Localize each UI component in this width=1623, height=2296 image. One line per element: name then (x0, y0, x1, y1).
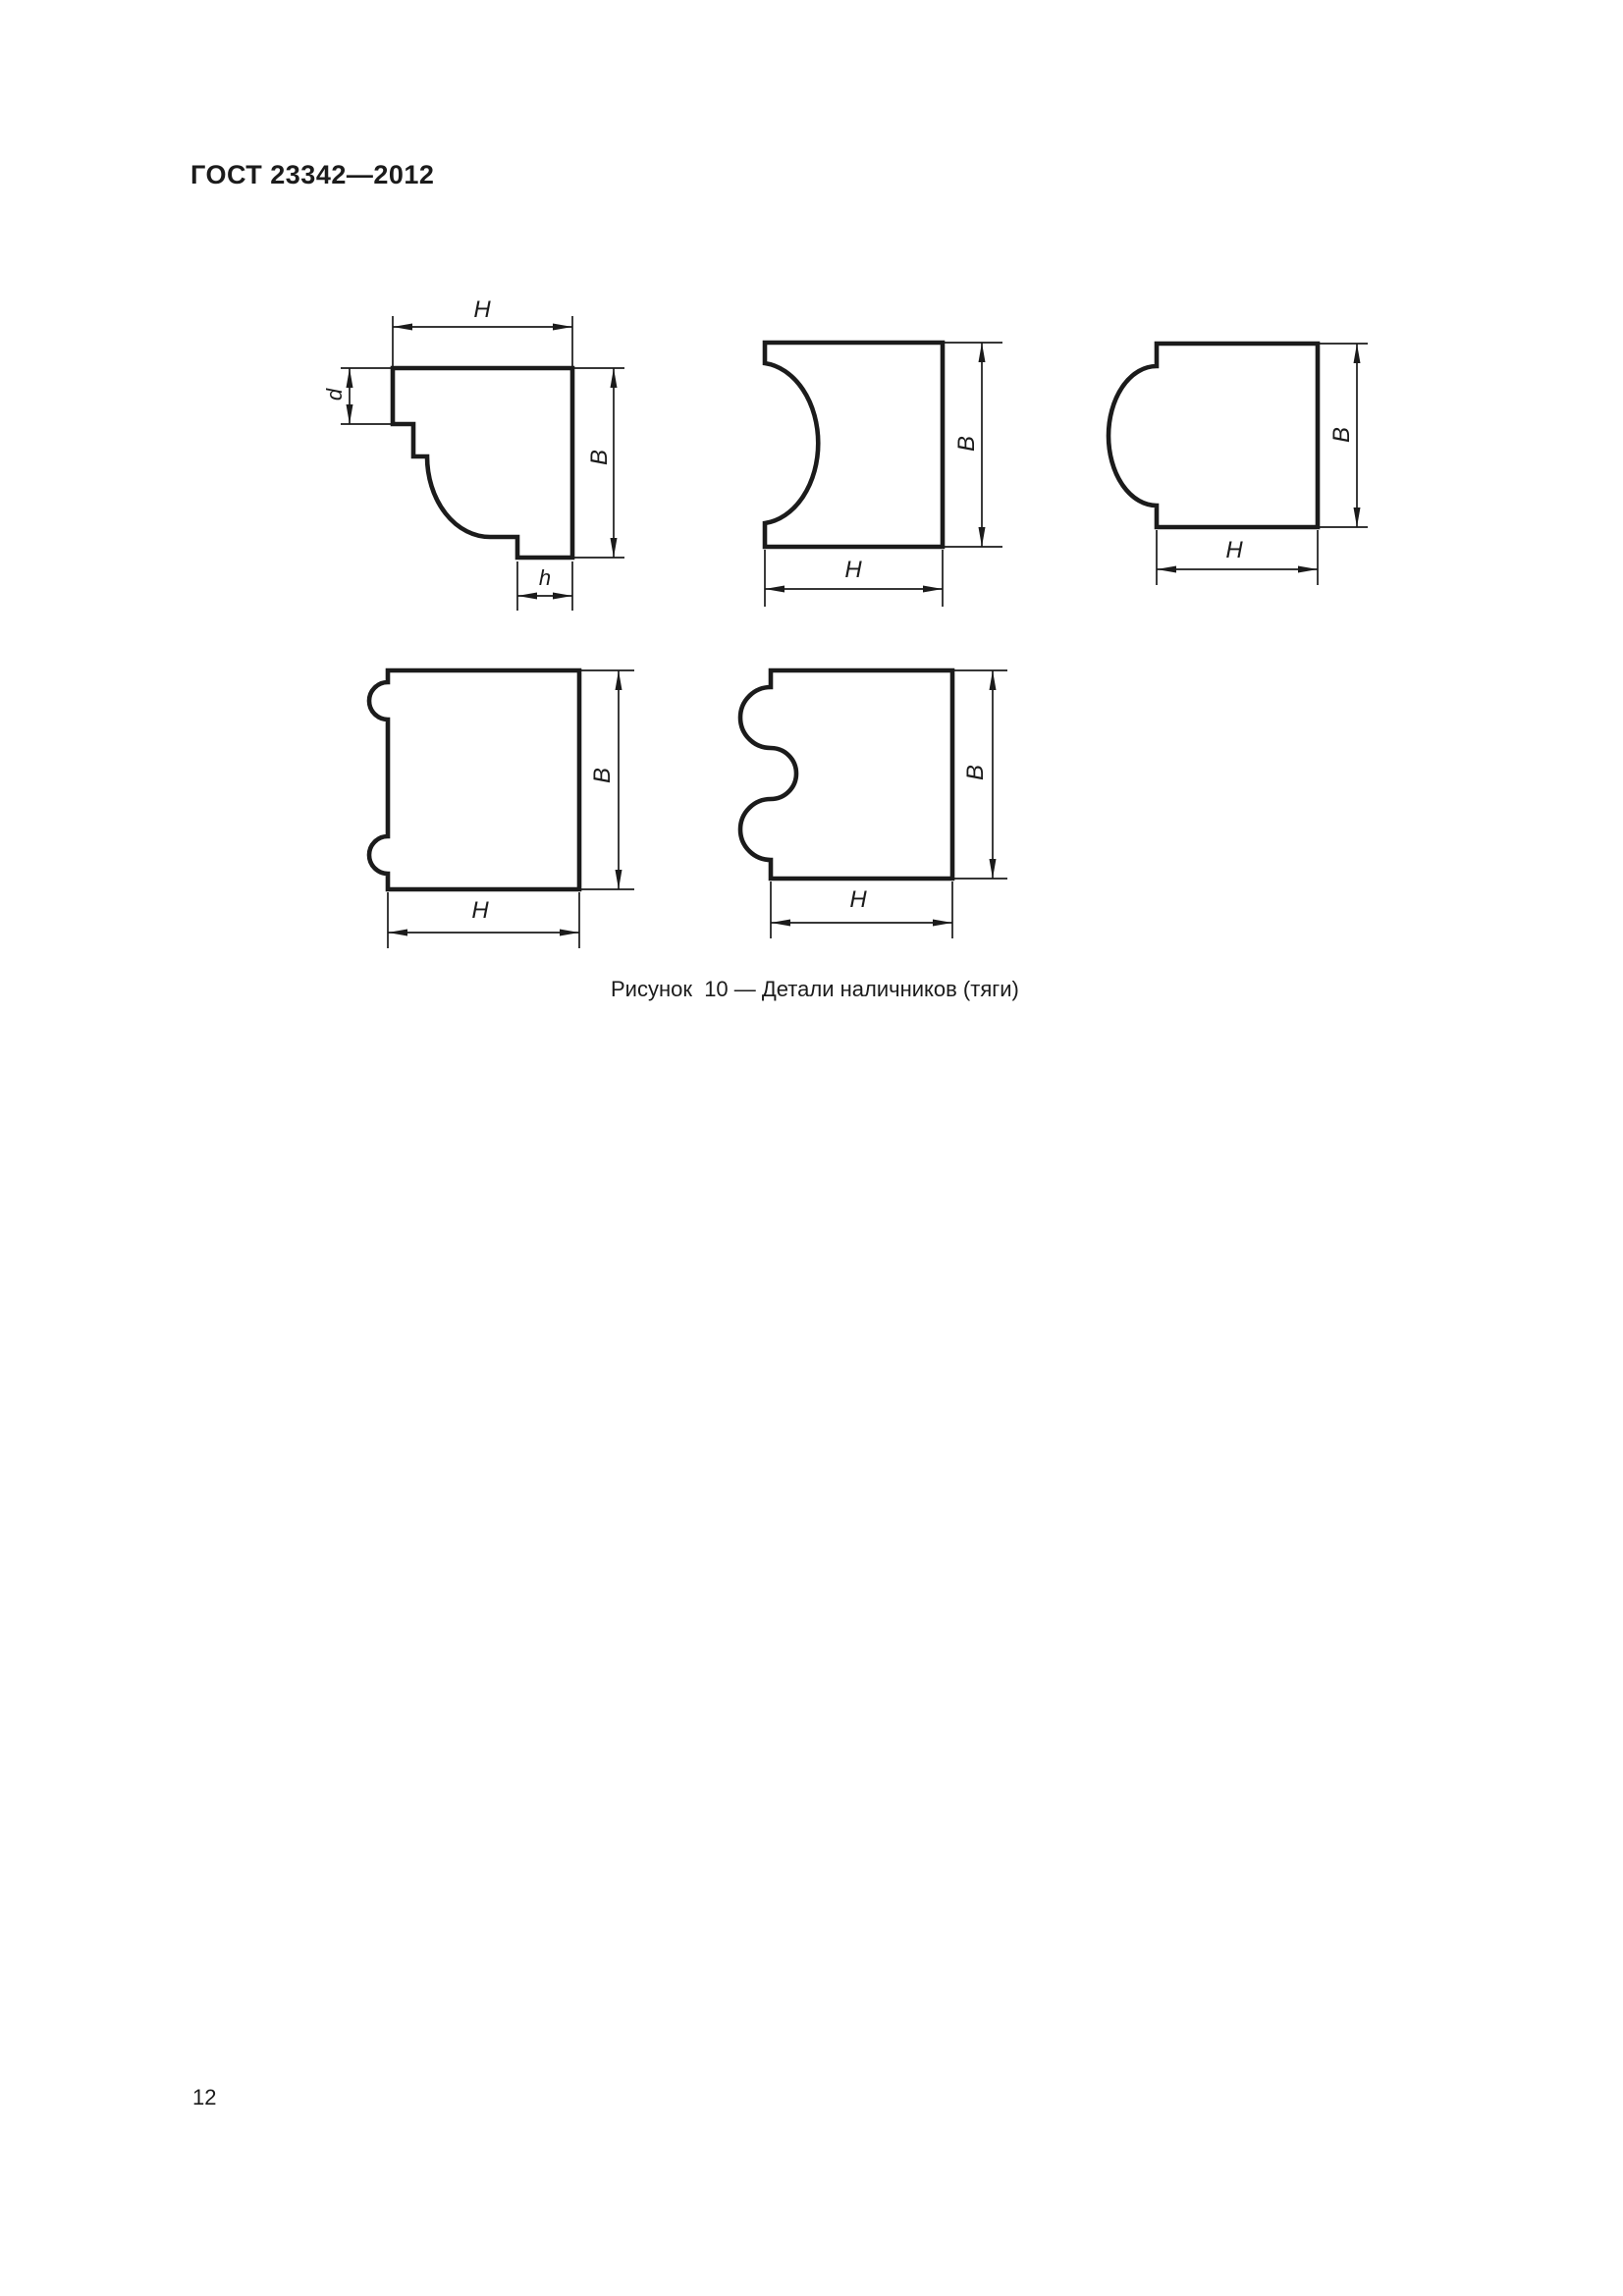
torus-profile-shape (1109, 344, 1318, 527)
profile-ogee-wave-diagram (740, 670, 1007, 938)
dim-label-H: H (844, 557, 861, 584)
dimension-arrowheads (388, 670, 622, 936)
dim-label-H: H (1225, 537, 1242, 564)
dimension-lines (1157, 344, 1368, 585)
figure-caption: Рисунок 10 — Детали наличников (тяги) (611, 977, 1019, 1002)
dimension-arrowheads (1157, 344, 1361, 573)
page-number: 12 (192, 2085, 216, 2110)
cavetto-profile-shape (393, 368, 572, 558)
dim-label-B: B (589, 768, 617, 783)
scotia-profile-shape (765, 343, 943, 547)
dim-label-B: B (586, 450, 614, 465)
dimension-lines (388, 670, 634, 948)
dim-label-d: d (322, 389, 348, 400)
dim-label-B: B (962, 765, 990, 780)
dimension-lines (341, 316, 624, 611)
profile-cavetto-diagram (341, 316, 624, 611)
dim-label-H: H (473, 296, 490, 324)
dimension-arrowheads (771, 670, 997, 927)
figure-10-drawing (0, 0, 1623, 2296)
dim-label-h: h (539, 565, 551, 591)
profile-scotia-diagram (765, 343, 1002, 607)
dim-label-B: B (953, 436, 981, 452)
dim-label-B: B (1328, 427, 1356, 443)
double-bead-profile-shape (369, 670, 579, 889)
dim-label-H: H (849, 886, 866, 914)
ogee-wave-profile-shape (740, 670, 952, 879)
dim-label-H: H (471, 897, 488, 925)
profile-double-bead-diagram (369, 670, 634, 948)
dimension-lines (765, 343, 1002, 607)
dimension-lines (771, 670, 1007, 938)
document-page: ГОСТ 23342—2012 (0, 0, 1623, 2296)
